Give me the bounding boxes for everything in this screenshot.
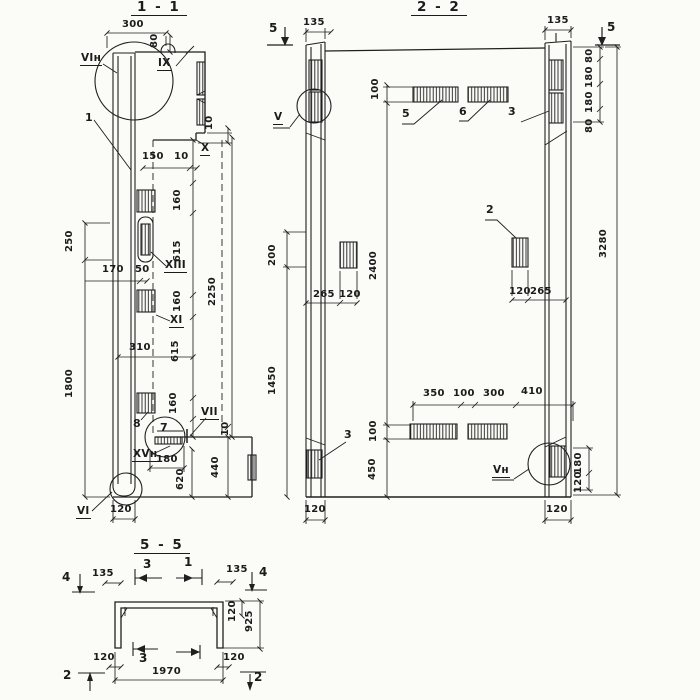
- dim-120-base-right: 120: [546, 504, 568, 515]
- callout-7: 7: [160, 422, 168, 433]
- callout-2: 2: [486, 204, 494, 215]
- dim-180-a: 180: [584, 66, 595, 88]
- cut-marker-2-right: 2: [254, 672, 263, 683]
- section-1-1-dimensions: [82, 33, 252, 523]
- callout-V: V: [273, 112, 283, 125]
- dim-180-b: 180: [584, 91, 595, 113]
- dim-135-right: 135: [547, 15, 569, 26]
- dim-265-left: 265: [313, 289, 335, 300]
- dim-300: 300: [122, 19, 144, 30]
- dim-80-a: 80: [584, 48, 595, 63]
- callout-3-right: 3: [508, 106, 516, 117]
- callout-3-left: 3: [344, 429, 352, 440]
- dim-1800: 1800: [64, 369, 75, 398]
- dim-120-leg-left: 120: [93, 652, 115, 663]
- callout-XVn: XVн: [132, 449, 158, 462]
- callout-IX: IX: [157, 58, 172, 71]
- cut-marker-4-right: 4: [259, 567, 268, 578]
- dim-160-b: 160: [172, 290, 183, 312]
- dim-3280: 3280: [598, 229, 609, 258]
- dim-100-bottom: 100: [368, 420, 379, 442]
- callout-8: 8: [133, 418, 141, 429]
- dim-170: 170: [102, 264, 124, 275]
- callout-XIII: XIII: [164, 260, 187, 273]
- cut-marker-5-right: 5: [607, 22, 616, 33]
- cut-marker-3-top: 3: [143, 559, 152, 570]
- dim-120-mid-right: 120: [509, 286, 531, 297]
- dim-100-mid: 100: [453, 388, 475, 399]
- dim-615-b: 615: [170, 340, 181, 362]
- dim-310: 310: [129, 342, 151, 353]
- cut-marker-2-left: 2: [63, 670, 72, 681]
- dim-160-c: 160: [168, 392, 179, 414]
- callout-Vn: Vн: [492, 465, 510, 478]
- dim-120-base: 120: [110, 504, 132, 515]
- dim-440: 440: [210, 456, 221, 478]
- callout-XI: XI: [169, 315, 184, 328]
- dim-120-base-left: 120: [304, 504, 326, 515]
- dim-410: 410: [521, 386, 543, 397]
- cut-marker-4-left: 4: [62, 572, 71, 583]
- dim-620: 620: [175, 468, 186, 490]
- callout-1: 1: [85, 112, 93, 123]
- dim-135-right: 135: [226, 564, 248, 575]
- callout-VII: VII: [200, 407, 219, 420]
- cut-marker-3-bottom: 3: [139, 653, 148, 664]
- dim-10-bottom: 10: [220, 421, 231, 436]
- dim-1970: 1970: [152, 666, 181, 677]
- drawing-linework: [0, 0, 700, 700]
- section-2-2-linework: [267, 27, 620, 497]
- dim-180: 180: [156, 454, 178, 465]
- dim-265-right: 265: [530, 286, 552, 297]
- dim-150: 150: [142, 151, 164, 162]
- dim-200: 200: [267, 244, 278, 266]
- dim-120-side: 120: [573, 471, 584, 493]
- dim-10-top: 10: [204, 115, 215, 130]
- cut-marker-1-top: 1: [184, 557, 193, 568]
- section-5-5-dimensions: [105, 582, 264, 684]
- dim-350: 350: [423, 388, 445, 399]
- dim-100-top: 100: [370, 78, 381, 100]
- dim-2250: 2250: [207, 277, 218, 306]
- callout-6: 6: [459, 106, 467, 117]
- dim-450: 450: [367, 458, 378, 480]
- dim-135-left: 135: [92, 568, 114, 579]
- dim-10: 10: [174, 151, 189, 162]
- dim-2400: 2400: [368, 251, 379, 280]
- dim-120-left: 120: [339, 289, 361, 300]
- dim-120-leg-right: 120: [223, 652, 245, 663]
- section-1-1-title: 1 - 1: [131, 2, 187, 16]
- dim-135-left: 135: [303, 17, 325, 28]
- dim-50: 50: [135, 264, 150, 275]
- dim-925: 925: [244, 610, 255, 632]
- section-2-2-title: 2 - 2: [411, 2, 467, 16]
- callout-X: X: [200, 143, 210, 156]
- dim-80-b: 80: [584, 118, 595, 133]
- callout-VIn: VIн: [80, 53, 102, 66]
- dim-120-flange: 120: [227, 600, 238, 622]
- callout-5: 5: [402, 108, 410, 119]
- dim-300: 300: [483, 388, 505, 399]
- section-5-5-title: 5 - 5: [134, 540, 190, 554]
- dim-250: 250: [64, 230, 75, 252]
- dim-160-a: 160: [172, 189, 183, 211]
- callout-VI: VI: [76, 506, 91, 519]
- cut-marker-5-left: 5: [269, 23, 278, 34]
- engineering-drawing-sheet: 1 - 1 VIн 1 300 80 IX X 10 150 10 160 61…: [0, 0, 700, 700]
- dim-1450: 1450: [267, 366, 278, 395]
- section-1-1-linework: [92, 42, 256, 511]
- dim-80: 80: [149, 33, 160, 48]
